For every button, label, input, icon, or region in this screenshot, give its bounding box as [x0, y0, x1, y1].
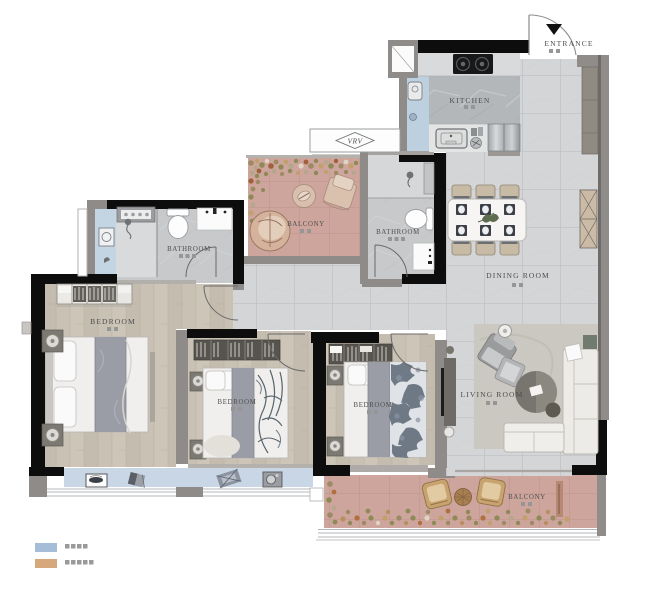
svg-text:LIVING ROOM: LIVING ROOM: [461, 390, 524, 399]
svg-text:DINING ROOM: DINING ROOM: [486, 271, 550, 280]
svg-text:ENTRANCE: ENTRANCE: [544, 39, 593, 48]
svg-text:BATHROOM: BATHROOM: [376, 229, 420, 236]
svg-text:BALCONY: BALCONY: [287, 221, 325, 228]
svg-text:KITCHEN: KITCHEN: [449, 96, 490, 105]
svg-text:BEDROOM: BEDROOM: [218, 399, 257, 406]
svg-text:BATHROOM: BATHROOM: [167, 246, 211, 253]
svg-text:VRV: VRV: [347, 137, 363, 146]
svg-text:BEDROOM: BEDROOM: [90, 317, 136, 326]
svg-text:BEDROOM: BEDROOM: [354, 402, 393, 409]
svg-text:BALCONY: BALCONY: [508, 494, 546, 501]
